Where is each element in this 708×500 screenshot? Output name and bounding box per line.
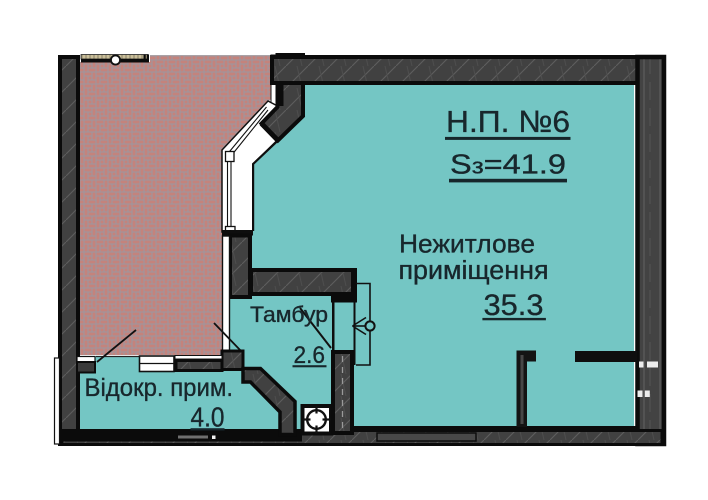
svg-text:Тамбур: Тамбур: [250, 302, 328, 327]
svg-text:4.0: 4.0: [191, 402, 225, 433]
svg-text:Нежитлове: Нежитлове: [399, 228, 535, 258]
svg-text:Sз=41.9: Sз=41.9: [450, 149, 566, 180]
svg-text:2.6: 2.6: [294, 342, 326, 369]
svg-text:Відокр. прим.: Відокр. прим.: [85, 374, 234, 402]
svg-text:35.3: 35.3: [484, 289, 544, 322]
svg-text:Н.П. №6: Н.П. №6: [446, 104, 570, 139]
svg-text:приміщення: приміщення: [399, 257, 549, 285]
